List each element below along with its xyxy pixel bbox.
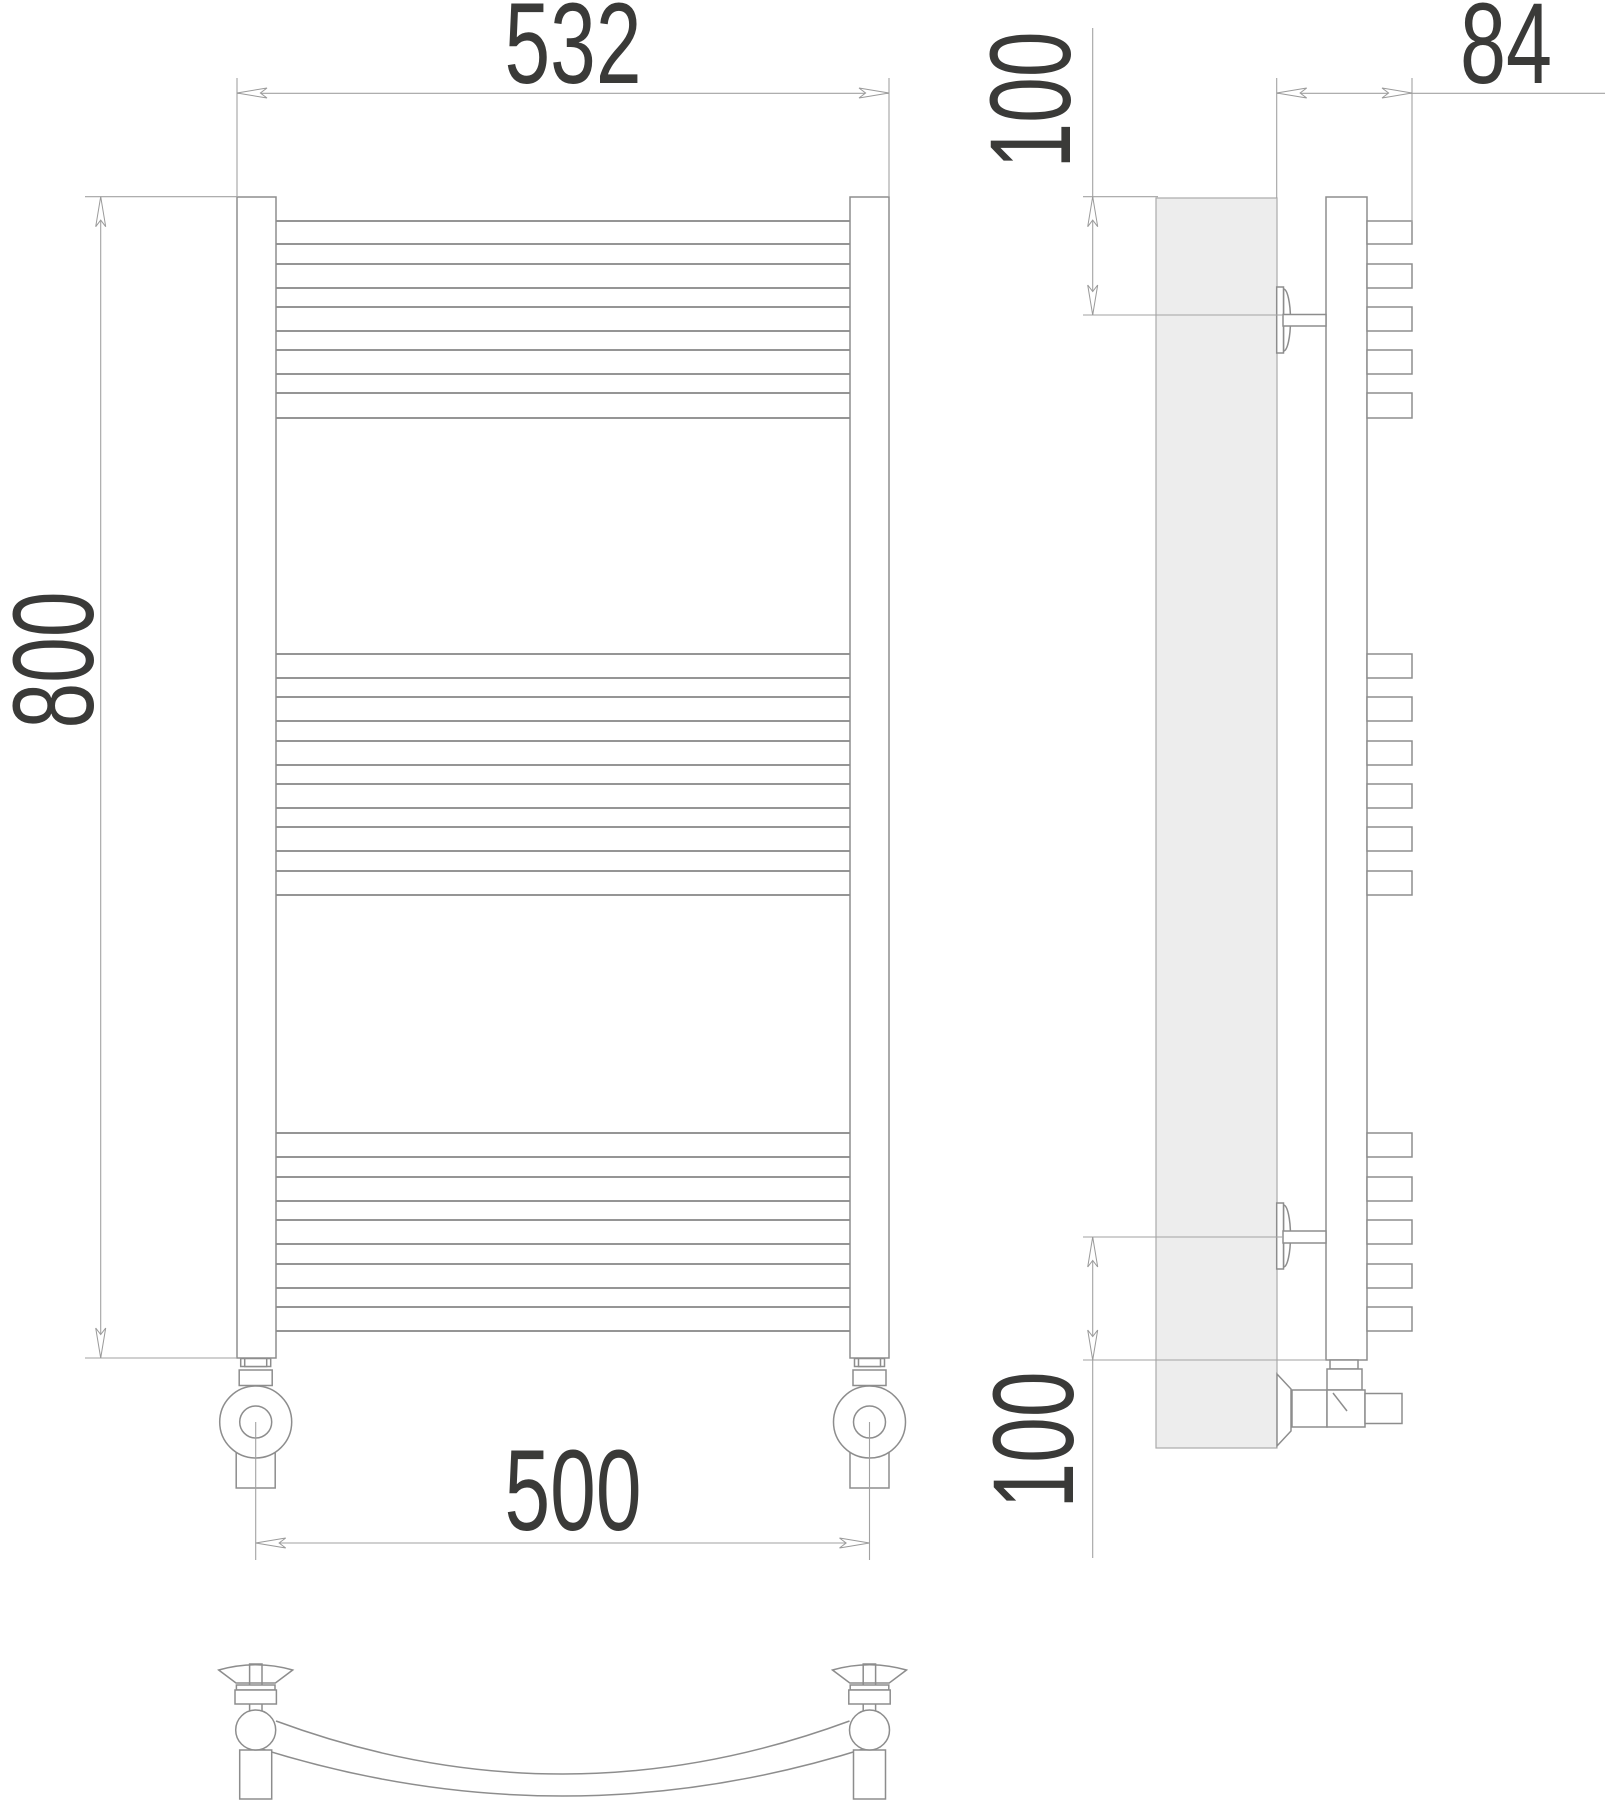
front-view — [220, 197, 906, 1488]
side-rung-stub — [1367, 654, 1412, 678]
side-rail-tube — [1326, 197, 1367, 1360]
bottom-valve-left — [219, 1664, 293, 1799]
dimension-height: 800 — [0, 197, 237, 1358]
side-rung-stub — [1367, 1220, 1412, 1244]
curved-rung-inner-arc — [259, 1748, 867, 1796]
side-rung-stub — [1367, 697, 1412, 721]
front-rail-left — [237, 197, 276, 1358]
wall-section — [1156, 198, 1277, 1448]
dimension-depth: 84 — [1277, 0, 1605, 222]
dimension-overall-width: 532 — [237, 0, 889, 197]
side-rung-stub — [1367, 264, 1412, 288]
dim-label-532: 532 — [505, 0, 642, 108]
dim-label-100-bottom: 100 — [970, 1372, 1098, 1509]
dim-label-500: 500 — [505, 1427, 642, 1555]
side-rung-stub — [1367, 307, 1412, 331]
front-rungs — [276, 221, 850, 1331]
side-rung-stub — [1367, 1133, 1412, 1157]
front-rail-right — [850, 197, 889, 1358]
side-view — [1156, 197, 1412, 1448]
side-rung-stub — [1367, 221, 1412, 244]
side-rungs — [1367, 221, 1412, 1331]
bottom-view — [219, 1664, 907, 1799]
curved-rung-outer-arc — [276, 1721, 850, 1774]
wall-bracket-top — [1277, 287, 1326, 353]
side-rung-stub — [1367, 393, 1412, 418]
side-valve-assembly — [1277, 1360, 1402, 1446]
towel-radiator-drawing: 532 800 500 84 100 — [0, 0, 1605, 1800]
dim-label-800: 800 — [0, 592, 118, 729]
dim-label-84: 84 — [1460, 0, 1552, 108]
side-rung-stub — [1367, 350, 1412, 374]
side-rung-stub — [1367, 827, 1412, 851]
side-rung-stub — [1367, 784, 1412, 808]
wall-bracket-bottom — [1277, 1203, 1326, 1269]
side-rung-stub — [1367, 1177, 1412, 1201]
dim-label-100-top: 100 — [967, 32, 1095, 169]
side-rung-stub — [1367, 1264, 1412, 1288]
technical-drawing-page: 532 800 500 84 100 — [0, 0, 1605, 1800]
side-rung-stub — [1367, 741, 1412, 765]
side-rung-stub — [1367, 871, 1412, 895]
side-rung-stub — [1367, 1307, 1412, 1331]
dimension-connection-spacing: 500 — [256, 1422, 870, 1560]
bottom-valve-right — [832, 1664, 906, 1799]
